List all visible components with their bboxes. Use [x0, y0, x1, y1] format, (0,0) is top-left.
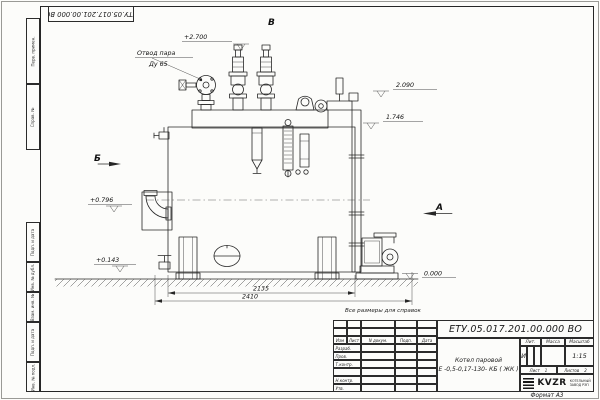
- tb-mass-header: Масса: [541, 338, 565, 346]
- tb-row-blank: [333, 368, 361, 376]
- svg-text:А: А: [435, 203, 443, 213]
- tb-sign-cell: [395, 384, 417, 392]
- ground-line: [55, 279, 418, 287]
- tb-company-cell: KVZR КОТЕЛЬНЫЙ ЗАВОД РЭП: [520, 374, 594, 392]
- tb-sign-cell: [361, 344, 395, 352]
- kvzr-logo-subtext: КОТЕЛЬНЫЙ ЗАВОД РЭП: [570, 379, 591, 387]
- tb-sign-cell: [417, 344, 437, 352]
- tb-lit-cell-2: [527, 346, 534, 366]
- title-block: Изм Лист N докум. Подп. Дата Разраб. Про…: [333, 320, 594, 392]
- tb-rev-cell: [395, 320, 417, 328]
- dimension-outer: 2410: [155, 272, 412, 305]
- tb-sign-cell: [361, 384, 395, 392]
- tb-rev-cell: [333, 328, 347, 336]
- svg-text:+0.143: +0.143: [96, 257, 119, 264]
- tb-row-tkontr: Т.контр.: [333, 360, 361, 368]
- elevation-0143: +0.143: [94, 257, 136, 272]
- tb-sign-cell: [395, 344, 417, 352]
- tb-sign-cell: [417, 368, 437, 376]
- svg-text:Б: Б: [94, 154, 101, 164]
- tb-rev-cell: [347, 328, 361, 336]
- reference-note: Все размеры для справок: [338, 308, 428, 314]
- drawing-sheet: ЕТУ.05.017.201.00.000 ВО Перв. примен. С…: [0, 0, 600, 400]
- safety-valve-2: [257, 45, 275, 110]
- svg-text:1.746: 1.746: [386, 114, 404, 121]
- dim-inner-value: 2135: [253, 286, 269, 293]
- tb-doc-number: ЕТУ.05.017.201.00.000 ВО: [437, 320, 594, 338]
- tb-sign-cell: [361, 376, 395, 384]
- tb-product-line1: Котел паровой: [455, 356, 502, 365]
- tb-sign-cell: [417, 352, 437, 360]
- gauge-plate: [296, 134, 309, 174]
- tb-sign-cell: [395, 352, 417, 360]
- elevation-2700: +2.700: [182, 34, 249, 50]
- tb-col-ndokum: N докум.: [361, 336, 395, 344]
- tb-sheets-value: 2: [584, 368, 587, 373]
- tb-col-izm: Изм: [333, 336, 347, 344]
- tb-lit-value: И: [520, 346, 527, 366]
- tb-sheet-value: 1: [545, 368, 548, 373]
- lifting-lug: [296, 96, 314, 110]
- tb-sign-cell: [395, 376, 417, 384]
- tb-product-name: Котел паровой Е -0,5-0,17-130- КБ ( ЖК ): [437, 338, 520, 392]
- tb-sign-cell: [395, 368, 417, 376]
- tb-rev-cell: [361, 320, 395, 328]
- tb-sign-cell: [417, 360, 437, 368]
- support-right: [315, 237, 339, 279]
- tb-rev-cell: [347, 320, 361, 328]
- tb-scale-header: Масштаб: [565, 338, 594, 346]
- tb-sign-cell: [395, 360, 417, 368]
- tb-sheet-label: Лист: [530, 368, 540, 373]
- tb-sheet-cell: Лист 1: [520, 366, 557, 374]
- upper-left-valve: [154, 128, 169, 140]
- view-marker-a: А: [423, 203, 452, 216]
- pump-unit: [356, 233, 398, 279]
- tb-row-utv: Утв.: [333, 384, 361, 392]
- kvzr-logo-icon: [523, 378, 534, 389]
- tb-lit-header: Лит.: [520, 338, 541, 346]
- tb-sign-cell: [361, 360, 395, 368]
- view-marker-b: Б: [94, 154, 121, 166]
- kvzr-logo-text: KVZR: [537, 378, 566, 388]
- tb-col-list: Лист: [347, 336, 361, 344]
- steam-collector: [192, 110, 328, 128]
- tb-lit-cell-3: [534, 346, 541, 366]
- elevation-0000: 0.000: [402, 271, 456, 280]
- thermometer-well: [336, 78, 343, 94]
- svg-text:Отвод пара: Отвод пара: [137, 50, 176, 57]
- water-level-column: [252, 128, 262, 174]
- svg-text:2.090: 2.090: [396, 82, 414, 89]
- drain-valve: [158, 256, 171, 270]
- steam-outlet-callout: Отвод пара Ду 65: [135, 50, 202, 81]
- tb-row-nkontr: Н.контр.: [333, 376, 361, 384]
- tb-sign-cell: [361, 368, 395, 376]
- steam-outlet-valve: [179, 76, 216, 111]
- tb-col-data: Дата: [417, 336, 437, 344]
- tb-sheets-label: Листов: [564, 368, 579, 373]
- tb-product-line2: Е -0,5-0,17-130- КБ ( ЖК ): [438, 365, 518, 374]
- tb-row-razrab: Разраб.: [333, 344, 361, 352]
- svg-text:Ду 65: Ду 65: [148, 61, 168, 68]
- tb-sign-cell: [417, 376, 437, 384]
- elevation-1746: 1.746: [363, 114, 423, 129]
- tb-row-prov: Пров.: [333, 352, 361, 360]
- support-left: [176, 237, 200, 279]
- svg-text:0.000: 0.000: [424, 271, 442, 278]
- tb-rev-cell: [417, 328, 437, 336]
- svg-text:+0.796: +0.796: [90, 197, 113, 204]
- elevation-0796: +0.796: [88, 197, 132, 212]
- elevation-2090: 2.090: [373, 82, 437, 97]
- view-marker-v: В: [268, 18, 275, 28]
- left-elbow-box: [142, 191, 172, 231]
- format-note: Формат А3: [500, 391, 594, 400]
- tb-mass-value: [541, 346, 565, 366]
- tb-rev-cell: [361, 328, 395, 336]
- svg-text:+2.700: +2.700: [184, 34, 207, 41]
- tb-sheets-cell: Листов 2: [557, 366, 594, 374]
- manhole: [214, 246, 240, 267]
- tb-rev-cell: [395, 328, 417, 336]
- tb-col-podp: Подп.: [395, 336, 417, 344]
- tb-rev-cell: [333, 320, 347, 328]
- tb-scale-value: 1:15: [565, 346, 594, 366]
- dim-outer-value: 2410: [242, 294, 258, 301]
- safety-valve-1: [229, 45, 247, 110]
- tb-rev-cell: [417, 320, 437, 328]
- tb-sign-cell: [417, 384, 437, 392]
- tb-sign-cell: [361, 352, 395, 360]
